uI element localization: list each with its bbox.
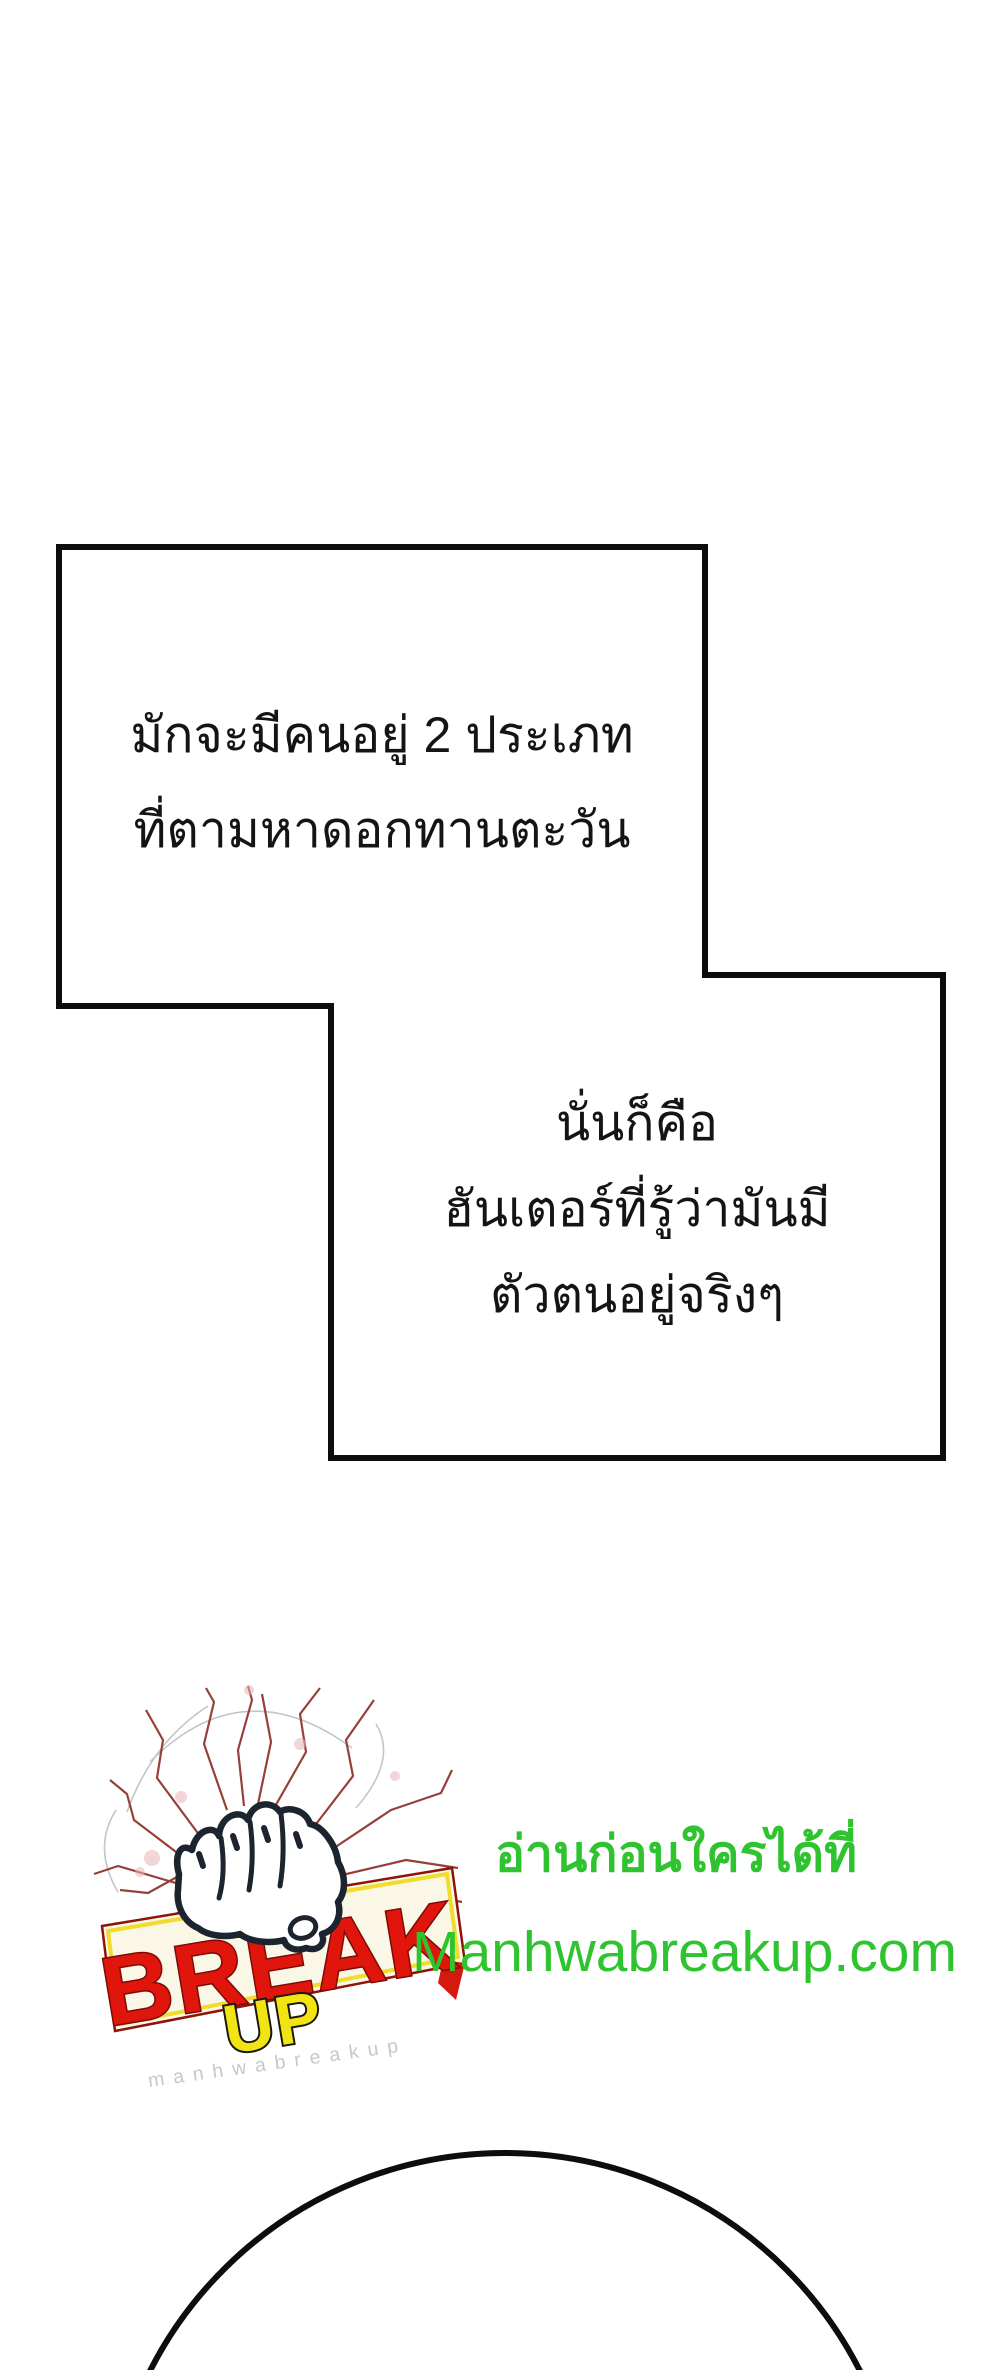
- promo-site-url: Manhwabreakup.com: [412, 1921, 952, 1983]
- caption-line: มักจะมีคนอยู่ 2 ประเภท: [59, 688, 705, 783]
- promo-caption: อ่านก่อนใครได้ที่: [416, 1820, 936, 1888]
- panel1-caption: มักจะมีคนอยู่ 2 ประเภท ที่ตามหาดอกทานตะว…: [59, 688, 705, 878]
- fist-outline: [177, 1804, 344, 1949]
- caption-line: นั่นก็คือ: [331, 1080, 943, 1166]
- caption-line: ที่ตามหาดอกทานตะวัน: [59, 783, 705, 878]
- comic-page: BREAK UP manhwabreakup: [0, 0, 1000, 2370]
- caption-line: ฮันเตอร์ที่รู้ว่ามันมี: [331, 1166, 943, 1252]
- breakup-logo: BREAK UP manhwabreakup: [93, 1685, 466, 2092]
- caption-line: ตัวตนอยู่จริงๆ: [331, 1252, 943, 1338]
- fist-icon: [177, 1804, 344, 1949]
- panel-circle-arc: [107, 2153, 903, 2370]
- panel2-caption: นั่นก็คือ ฮันเตอร์ที่รู้ว่ามันมี ตัวตนอย…: [331, 1080, 943, 1338]
